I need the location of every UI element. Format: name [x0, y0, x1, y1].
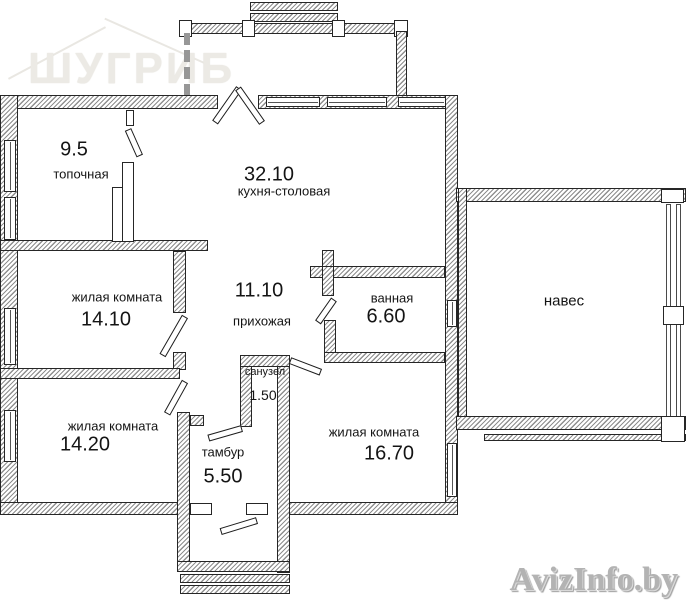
room-name-hallway: прихожая: [233, 314, 291, 329]
window: [447, 443, 457, 497]
wall-vestibule-right: [277, 355, 290, 573]
room-area-living-1410: 14.10: [81, 309, 131, 332]
wall-canopy-top: [456, 188, 686, 202]
room-area-vestibule: 5.50: [204, 466, 243, 489]
wall-canopy-left-pier: [458, 188, 467, 430]
wall-rooms-divider: [0, 368, 180, 379]
room-name-living-1670: жилая комната: [329, 425, 420, 440]
room-name-living-1410: жилая комната: [72, 290, 163, 305]
room-name-kitchen: кухня-столовая: [238, 184, 331, 199]
wall-bottom-right: [277, 502, 458, 515]
window: [327, 97, 387, 107]
canopy-post-bottom: [661, 416, 685, 442]
room-name-wc: санузел: [245, 366, 285, 378]
canopy-post-top: [661, 189, 684, 203]
window: [398, 97, 446, 107]
floorplan: ШУГРИБ: [0, 0, 686, 600]
porch-step: [180, 585, 290, 594]
threshold-box: [190, 503, 212, 515]
window: [447, 300, 457, 327]
wall-terrace-right: [396, 31, 407, 97]
room-name-living-1420: жилая комната: [68, 419, 159, 434]
window: [4, 410, 16, 462]
window: [4, 140, 16, 192]
room-area-wc: 1.50: [249, 387, 276, 403]
door-vestibule: [207, 425, 243, 441]
logo-watermark: ШУГРИБ: [28, 44, 235, 94]
wall-stoop-step-2: [250, 13, 338, 22]
site-watermark: AvizInfo.by: [510, 561, 678, 599]
wall-canopy-bottom-edge: [484, 434, 686, 441]
wall-canopy-bottom: [456, 416, 686, 430]
wall-porch-bottom: [177, 561, 290, 572]
room-area-boiler: 9.5: [60, 139, 88, 162]
room-name-boiler: топочная: [53, 167, 108, 182]
door-living-room-1420: [164, 380, 188, 416]
room-area-bathroom: 6.60: [367, 306, 406, 329]
terrace-post: [332, 20, 345, 37]
chimney-pier: [122, 162, 134, 242]
threshold-box: [246, 503, 268, 515]
canopy-post-mid: [663, 306, 684, 325]
wall-boiler-bottom: [0, 240, 208, 251]
door-living-room-1670: [289, 357, 322, 375]
window: [266, 97, 320, 107]
window: [4, 308, 16, 365]
window: [4, 197, 16, 240]
wall-hall-divider-upper: [173, 251, 186, 313]
wall-terrace-left-dashed: [184, 33, 190, 96]
door-stub: [126, 110, 134, 126]
room-name-bathroom: ванная: [371, 291, 414, 306]
porch-step: [180, 574, 290, 583]
wall-bottom-left: [0, 502, 190, 515]
wall-stoop-step-1: [250, 2, 338, 11]
door-boiler-room: [125, 128, 143, 157]
door-living-room-1410: [159, 315, 188, 357]
room-name-canopy: навес: [544, 293, 584, 310]
room-area-living-1420: 14.20: [60, 434, 110, 457]
door-porch: [220, 517, 258, 535]
chimney-pier: [112, 187, 123, 242]
wall-vestibule-top-stub: [190, 415, 204, 426]
wall-top-left: [0, 95, 218, 109]
wall-bath-left-upper: [322, 266, 334, 296]
wall-terrace-top: [183, 23, 408, 34]
wall-bath-bottom: [324, 352, 445, 363]
wall-vestibule-left: [177, 412, 190, 572]
room-name-vestibule: тамбур: [202, 445, 245, 460]
room-area-living-1670: 16.70: [364, 443, 414, 466]
terrace-post: [242, 20, 255, 37]
room-area-hallway: 11.10: [235, 280, 284, 303]
